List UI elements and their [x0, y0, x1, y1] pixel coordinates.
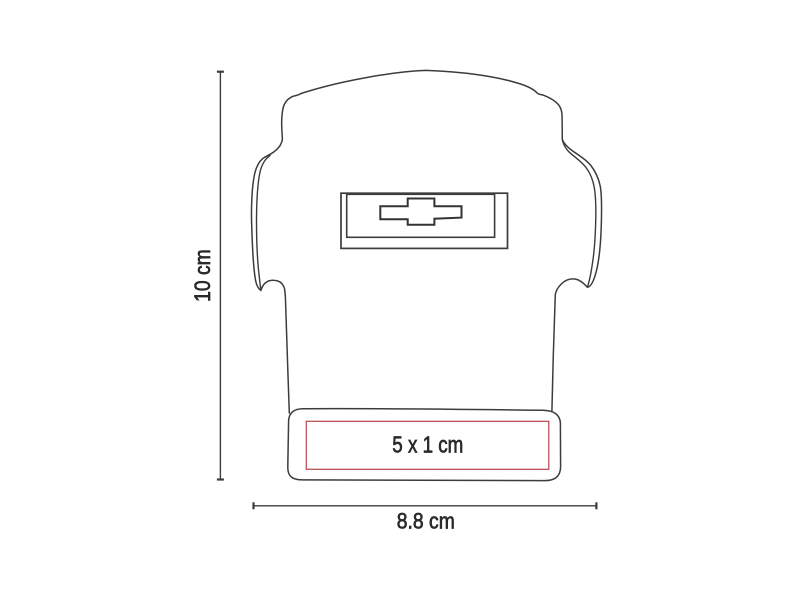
- svg-text:10 cm: 10 cm: [190, 249, 215, 302]
- svg-text:8.8 cm: 8.8 cm: [397, 508, 455, 533]
- svg-text:5 x 1 cm: 5 x 1 cm: [392, 432, 463, 458]
